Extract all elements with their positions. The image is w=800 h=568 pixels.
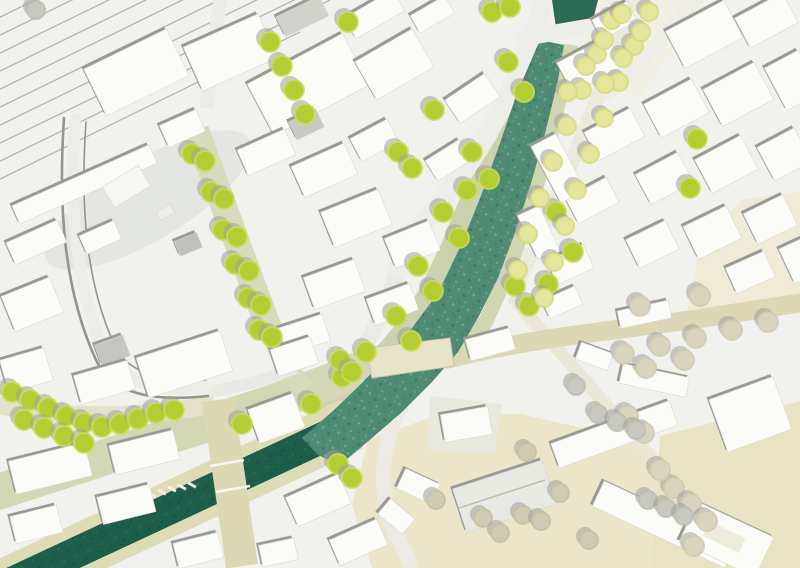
tree-pale-beige: [630, 296, 650, 316]
tree-olive: [532, 512, 550, 530]
tree-olive: [580, 531, 598, 549]
tree-green: [195, 151, 215, 171]
tree-green: [424, 100, 444, 120]
tree-pale-beige: [686, 328, 706, 348]
tree-pale-yellow: [556, 217, 574, 235]
tree-pale-yellow: [559, 83, 577, 101]
tree-green: [402, 158, 422, 178]
tree-green: [272, 56, 292, 76]
tree-green: [342, 468, 362, 488]
tree-green: [251, 295, 271, 315]
tree-green: [338, 12, 358, 32]
tree-pale-yellow: [577, 57, 595, 75]
tree-green: [260, 32, 280, 52]
tree-gray: [627, 421, 645, 439]
tree-olive: [551, 484, 569, 502]
tree-green: [563, 242, 583, 262]
tree-pale-yellow: [535, 289, 553, 307]
tree-olive: [427, 491, 445, 509]
tree-pale-beige: [722, 320, 742, 340]
tree-green: [284, 80, 304, 100]
tree-green: [214, 189, 234, 209]
site-plan-canvas: [0, 0, 800, 568]
tree-olive: [518, 443, 536, 461]
tree-green: [457, 180, 477, 200]
tree-green: [301, 394, 321, 414]
tree-pale-yellow: [568, 181, 586, 199]
tree-green: [239, 261, 259, 281]
tree-pale-beige: [697, 511, 717, 531]
tree-pale-beige: [758, 312, 778, 332]
tree-pale-yellow: [545, 253, 563, 271]
tree-green: [408, 256, 428, 276]
tree-pale-yellow: [595, 31, 613, 49]
tree-pale-yellow: [519, 225, 537, 243]
tree-green: [262, 327, 282, 347]
tree-pale-yellow: [596, 75, 614, 93]
tree-pale-yellow: [581, 145, 599, 163]
tree-pale-beige: [690, 286, 710, 306]
tree-pale-yellow: [544, 153, 562, 171]
tree-pale-yellow: [640, 3, 658, 21]
tree-green: [164, 400, 184, 420]
tree-pale-yellow: [614, 49, 632, 67]
tree-green: [498, 52, 518, 72]
tree-pale-beige: [674, 350, 694, 370]
tree-pale-beige: [650, 336, 670, 356]
tree-pale-beige: [684, 536, 704, 556]
tree-pale-yellow: [558, 117, 576, 135]
tree-green: [356, 342, 376, 362]
tree-pale-yellow: [613, 5, 631, 23]
tree-green: [423, 281, 443, 301]
tree-pale-yellow: [509, 261, 527, 279]
masterplan-site-map: [0, 0, 800, 568]
tree-green: [74, 433, 94, 453]
tree-gray: [27, 1, 45, 19]
tree-pale-yellow: [531, 189, 549, 207]
tree-pale-beige: [614, 344, 634, 364]
tree-pale-yellow: [632, 23, 650, 41]
tree-green: [687, 129, 707, 149]
tree-green: [500, 0, 520, 17]
tree-pale-beige: [650, 460, 670, 480]
tree-pale-beige: [636, 358, 656, 378]
tree-green: [462, 142, 482, 162]
tree-green: [514, 82, 534, 102]
tree-green: [232, 414, 252, 434]
tree-green: [401, 331, 421, 351]
tree-pale-yellow: [595, 109, 613, 127]
tree-gray: [675, 507, 693, 525]
tree-green: [227, 227, 247, 247]
tree-green: [342, 362, 362, 382]
tree-green: [449, 228, 469, 248]
tree-olive: [491, 524, 509, 542]
tree-green: [386, 306, 406, 326]
tree-gray: [567, 377, 585, 395]
tree-green: [295, 104, 315, 124]
tree-green: [433, 202, 453, 222]
tree-green: [479, 169, 499, 189]
tree-green: [680, 178, 700, 198]
